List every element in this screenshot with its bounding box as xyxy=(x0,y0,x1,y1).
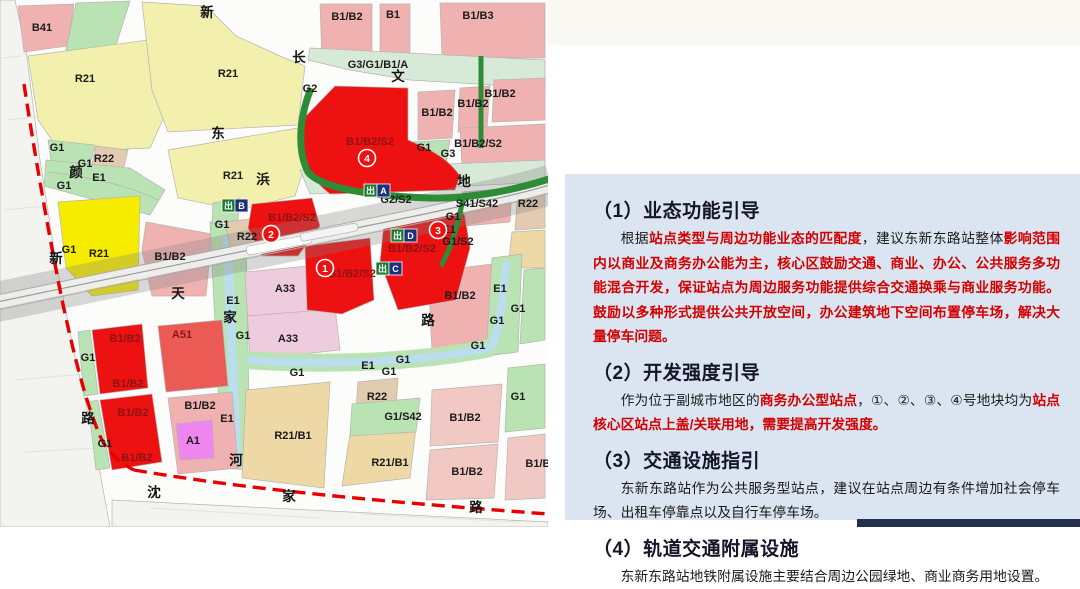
station-exit-D: 出D xyxy=(391,229,417,242)
parcel-code-label: G1/S42 xyxy=(384,411,421,423)
guidance-sections: （1）业态功能引导根据站点类型与周边功能业态的匹配度，建议东新东路站整体影响范围… xyxy=(593,196,1060,589)
zoning-map-svg: 新长文东浜地颜新天家河路路沈家路B41R21R21R21B1/B2B1B1/B3… xyxy=(0,0,548,527)
svg-text:1: 1 xyxy=(322,263,328,275)
svg-text:出: 出 xyxy=(224,200,233,211)
street-name-label: 新 xyxy=(200,4,214,20)
section-heading: （4）轨道交通附属设施 xyxy=(593,534,1060,561)
parcel-code-label: G1/S2 xyxy=(442,236,473,248)
plot-marker-2: 2 xyxy=(263,226,280,243)
parcel-code-label: E1 xyxy=(220,413,233,425)
parcel-code-label: B1/B2/S2 xyxy=(268,212,316,224)
station-exit-A: 出A xyxy=(364,184,390,197)
parcel-code-label: G1 xyxy=(446,211,461,223)
parcel-code-label: G1 xyxy=(98,438,113,450)
parcel-code-label: G1 xyxy=(490,315,505,327)
street-name-label: 路 xyxy=(81,410,95,426)
parcel-code-label: B41 xyxy=(32,22,52,34)
svg-text:C: C xyxy=(392,264,399,274)
section-heading: （2）开发强度引导 xyxy=(593,358,1060,385)
svg-text:出: 出 xyxy=(393,230,402,241)
zoning-map: 新长文东浜地颜新天家河路路沈家路B41R21R21R21B1/B2B1B1/B3… xyxy=(0,0,548,527)
parcel-code-label: E1 xyxy=(226,295,239,307)
street-name-label: 浜 xyxy=(256,171,270,187)
parcel-code-label: B1/B2/S2 xyxy=(454,138,502,150)
parcel-code-label: B1/B2 xyxy=(525,458,548,470)
parcel-code-label: G1 xyxy=(511,391,526,403)
svg-text:出: 出 xyxy=(378,263,387,274)
guidance-section: （1）业态功能引导根据站点类型与周边功能业态的匹配度，建议东新东路站整体影响范围… xyxy=(593,196,1060,350)
parcel-code-label: E1 xyxy=(361,360,374,372)
parcel-code-label: R21 xyxy=(218,68,238,80)
page-top-margin xyxy=(540,0,1080,45)
parcel-code-label: B1/B2 xyxy=(154,251,185,263)
street-name-label: 家 xyxy=(223,309,237,325)
parcel-code-label: G1 xyxy=(62,244,77,256)
guidance-section: （3）交通设施指引东新东路站作为公共服务型站点，建议在站点周边有条件增加社会停车… xyxy=(593,446,1060,526)
parcel-code-label: R22 xyxy=(518,198,538,210)
parcel-code-label: G1 xyxy=(417,142,432,154)
parcel-code-label: R21/B1 xyxy=(274,430,311,442)
section-heading: （3）交通设施指引 xyxy=(593,446,1060,473)
parcel-code-label: E1 xyxy=(493,283,506,295)
parcel-code-label: G1 xyxy=(215,219,230,231)
parcel-code-label: G1 xyxy=(382,366,397,378)
street-name-label: 家 xyxy=(282,488,296,504)
section-body: 作为位于副城市地区的商务办公型站点，①、②、③、④号地块均为站点核心区站点上盖/… xyxy=(593,389,1060,438)
parcel-code-label: G1 xyxy=(396,354,411,366)
parcel-code-label: B1/B2/S2 xyxy=(388,243,436,255)
parcel-code-label: G1 xyxy=(236,330,251,342)
parcel-code-label: G1 xyxy=(290,367,305,379)
street-name-label: 长 xyxy=(292,49,306,65)
section-body: 根据站点类型与周边功能业态的匹配度，建议东新东路站整体影响范围内以商业及商务办公… xyxy=(593,227,1060,350)
parcel-code-label: R21 xyxy=(89,248,109,260)
guidance-panel: （1）业态功能引导根据站点类型与周边功能业态的匹配度，建议东新东路站整体影响范围… xyxy=(565,174,1080,520)
parcel-code-label: B1/B2/S2 xyxy=(328,268,376,280)
parcel-code-label: B1/B2 xyxy=(451,466,482,478)
street-name-label: 东 xyxy=(211,125,225,141)
parcel-code-label: R22 xyxy=(237,231,257,243)
svg-text:A: A xyxy=(380,186,387,196)
parcel-code-label: B1/B2 xyxy=(117,407,148,419)
parcel-code-label: A1 xyxy=(186,435,200,447)
street-name-label: 地 xyxy=(457,173,471,189)
parcel-code-label: G1 xyxy=(511,303,526,315)
parcel-code-label: B1/B2 xyxy=(484,88,515,100)
plot-marker-4: 4 xyxy=(359,150,376,167)
parcel-code-label: R22 xyxy=(94,153,114,165)
parcel-code-label: G1 xyxy=(78,158,93,170)
parcel-code-label: B1/B2 xyxy=(444,290,475,302)
plot-marker-3: 3 xyxy=(430,222,447,239)
parcel-code-label: G1 xyxy=(81,352,96,364)
parcel-code-label: R21 xyxy=(223,170,243,182)
street-name-label: 沈 xyxy=(147,484,161,500)
parcel-code-label: A33 xyxy=(275,283,295,295)
parcel-code-label: G1 xyxy=(50,142,65,154)
parcel-code-label: B1/B2 xyxy=(331,11,362,23)
parcel-code-label: R21 xyxy=(75,73,95,85)
svg-text:3: 3 xyxy=(435,225,441,237)
svg-text:4: 4 xyxy=(364,153,370,165)
street-name-label: 路 xyxy=(421,312,435,328)
svg-text:B: B xyxy=(238,201,245,211)
parcel-code-label: B1/B2 xyxy=(421,107,452,119)
parcel-code-label: R22 xyxy=(367,391,387,403)
parcel-code-label: B1/B2 xyxy=(112,378,143,390)
parcel-code-label: A33 xyxy=(278,333,298,345)
station-exit-B: 出B xyxy=(222,199,248,212)
parcel-code-label: G2 xyxy=(303,83,318,95)
parcel-code-label: G3 xyxy=(441,148,456,160)
parcel-code-label: A51 xyxy=(172,329,192,341)
parcel-code-label: B1/B2/S2 xyxy=(346,136,394,148)
parcel-code-label: B1 xyxy=(386,9,400,21)
guidance-section: （2）开发强度引导作为位于副城市地区的商务办公型站点，①、②、③、④号地块均为站… xyxy=(593,358,1060,438)
parcel-code-label: S41/S42 xyxy=(456,198,498,210)
parcel-code-label: B1/B3 xyxy=(462,10,493,22)
svg-text:2: 2 xyxy=(268,229,274,241)
section-heading: （1）业态功能引导 xyxy=(593,196,1060,223)
street-name-label: 河 xyxy=(229,452,243,468)
parcel-code-label: G1 xyxy=(471,340,486,352)
parcel-code-label: R21/B1 xyxy=(371,457,408,469)
parcel-code-label: G1 xyxy=(57,180,72,192)
page-bottom-bar xyxy=(857,519,1080,527)
parcel-code-label: B1/B2 xyxy=(449,412,480,424)
plot-marker-1: 1 xyxy=(317,260,334,277)
street-name-label: 路 xyxy=(469,499,483,515)
parcel-code-label: B1/B2 xyxy=(109,333,140,345)
station-exit-C: 出C xyxy=(376,262,402,275)
section-body: 东新东路站地铁附属设施主要结合周边公园绿地、商业商务用地设置。 xyxy=(593,565,1060,589)
street-name-label: 天 xyxy=(171,286,185,301)
svg-text:D: D xyxy=(407,231,414,241)
parcel-code-label: B1/B2 xyxy=(121,452,152,464)
parcel-code-label: B1/B2 xyxy=(184,400,215,412)
parcel-code-label: E1 xyxy=(92,172,105,184)
svg-text:出: 出 xyxy=(366,185,375,196)
parcel-code-label: G3/G1/B1/A xyxy=(348,59,409,71)
guidance-section: （4）轨道交通附属设施东新东路站地铁附属设施主要结合周边公园绿地、商业商务用地设… xyxy=(593,534,1060,589)
